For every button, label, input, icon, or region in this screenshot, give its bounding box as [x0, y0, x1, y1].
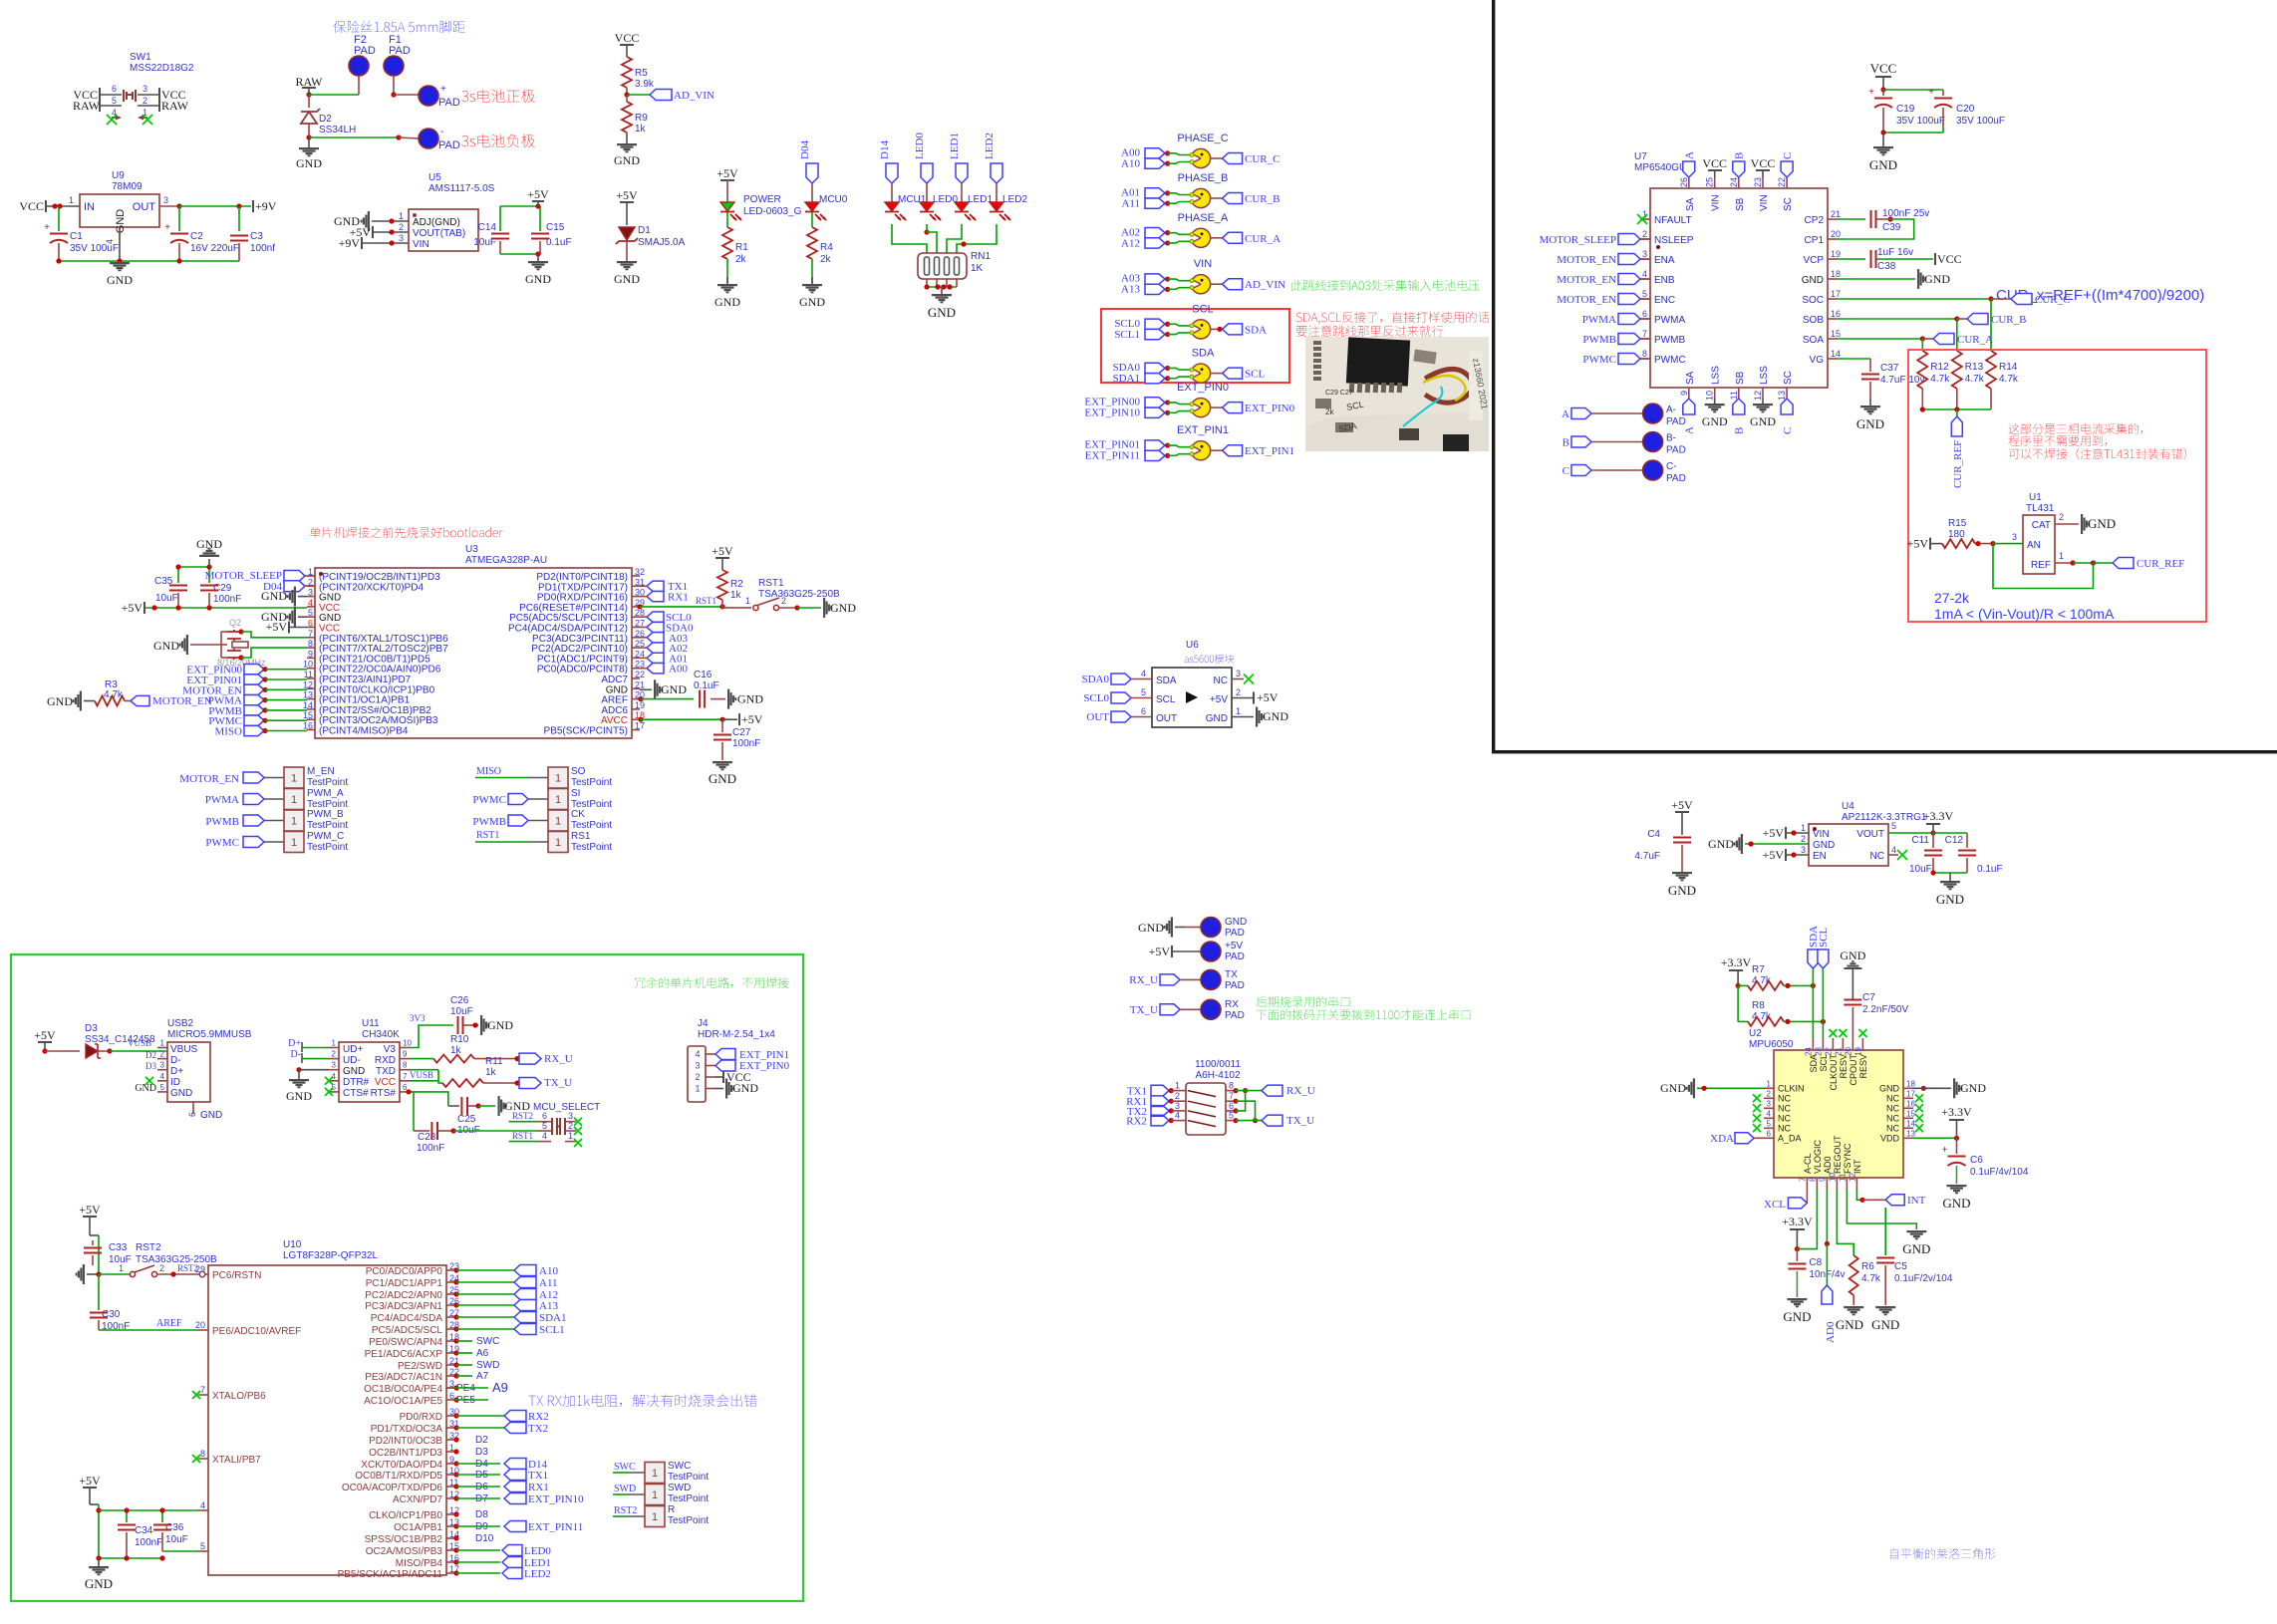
- svg-text:CUR_B: CUR_B: [1245, 193, 1280, 205]
- svg-text:GND: GND: [1813, 840, 1835, 851]
- svg-text:5: 5: [1642, 289, 1647, 299]
- svg-text:U10: U10: [283, 1239, 302, 1250]
- svg-text:PWM_B: PWM_B: [307, 809, 344, 820]
- svg-text:C25: C25: [457, 1114, 476, 1125]
- svg-text:A10: A10: [1121, 158, 1140, 170]
- svg-text:12: 12: [1753, 391, 1763, 401]
- svg-text:SB: SB: [1735, 197, 1746, 211]
- svg-text:EXT_PIN10: EXT_PIN10: [1084, 407, 1140, 419]
- svg-text:SC: SC: [1783, 371, 1794, 385]
- svg-text:2: 2: [695, 1072, 700, 1082]
- svg-text:POWER: POWER: [743, 194, 781, 205]
- svg-text:PWMC: PWMC: [205, 837, 239, 849]
- svg-text:6: 6: [449, 1391, 454, 1401]
- svg-text:1k: 1k: [450, 1045, 462, 1056]
- svg-text:1: 1: [1236, 706, 1241, 716]
- svg-text:GND: GND: [47, 694, 73, 708]
- svg-text:VIN: VIN: [413, 239, 429, 250]
- svg-text:2: 2: [1236, 687, 1241, 697]
- svg-text:PE3/ADC7/AC1N: PE3/ADC7/AC1N: [365, 1372, 442, 1383]
- svg-text:C6: C6: [1970, 1155, 1983, 1166]
- svg-text:3: 3: [1801, 845, 1806, 855]
- svg-text:VCC: VCC: [1937, 252, 1962, 266]
- svg-text:R12: R12: [1930, 362, 1949, 373]
- svg-text:AP2112K-3.3TRG1: AP2112K-3.3TRG1: [1842, 812, 1927, 823]
- svg-text:2.2nF/50V: 2.2nF/50V: [1862, 1004, 1908, 1015]
- svg-text:MPU6050: MPU6050: [1749, 1039, 1794, 1050]
- svg-text:9: 9: [403, 1050, 408, 1059]
- svg-text:10uF: 10uF: [155, 593, 178, 604]
- svg-text:35V 100uF: 35V 100uF: [1956, 116, 2005, 127]
- svg-text:6: 6: [1767, 1129, 1772, 1138]
- svg-text:2: 2: [2059, 512, 2064, 522]
- svg-text:4.7k: 4.7k: [1999, 374, 2019, 385]
- svg-text:C4: C4: [1647, 829, 1660, 840]
- svg-text:PC1/ADC1/APP1: PC1/ADC1/APP1: [366, 1278, 443, 1289]
- svg-text:17: 17: [635, 721, 645, 731]
- svg-text:GND: GND: [115, 209, 127, 234]
- svg-text:ATMEGA328P-AU: ATMEGA328P-AU: [465, 555, 547, 566]
- svg-text:22: 22: [635, 670, 645, 679]
- svg-text:0.1uF: 0.1uF: [546, 237, 572, 248]
- svg-text:RST2: RST2: [177, 1263, 198, 1273]
- svg-text:PHASE_B: PHASE_B: [1178, 172, 1229, 184]
- svg-text:EXT_PIN1: EXT_PIN1: [1245, 445, 1294, 457]
- svg-text:TestPoint: TestPoint: [307, 842, 348, 853]
- svg-text:+5V: +5V: [79, 1474, 101, 1488]
- svg-text:GND: GND: [107, 273, 133, 287]
- svg-text:ACXN/PD7: ACXN/PD7: [393, 1494, 442, 1505]
- svg-text:GND: GND: [487, 1018, 513, 1032]
- svg-text:4: 4: [1141, 669, 1146, 678]
- svg-text:27-2k: 27-2k: [1934, 590, 1970, 606]
- svg-text:MISO: MISO: [214, 726, 242, 738]
- svg-text:8: 8: [200, 1449, 205, 1459]
- svg-text:2k: 2k: [820, 254, 832, 265]
- svg-text:USB2: USB2: [167, 1018, 194, 1029]
- svg-text:17: 17: [1831, 289, 1841, 299]
- svg-text:PWM_A: PWM_A: [307, 788, 344, 799]
- svg-text:PWMA: PWMA: [205, 794, 239, 806]
- svg-text:RST1: RST1: [476, 830, 499, 841]
- svg-text:CP1: CP1: [1805, 235, 1825, 246]
- svg-text:MCU0: MCU0: [819, 194, 848, 205]
- svg-text:1uF 16v: 1uF 16v: [1877, 247, 1913, 258]
- svg-text:19: 19: [635, 700, 645, 710]
- svg-text:PWMB: PWMB: [205, 816, 239, 828]
- svg-text:21: 21: [635, 679, 645, 689]
- svg-text:D-: D-: [170, 1055, 181, 1066]
- svg-text:PAD: PAD: [1666, 473, 1686, 484]
- svg-text:(PCINT4/MISO)PB4: (PCINT4/MISO)PB4: [319, 726, 409, 737]
- svg-text:8: 8: [403, 1061, 408, 1070]
- svg-text:VCC: VCC: [615, 31, 640, 45]
- svg-text:15: 15: [303, 710, 313, 720]
- svg-text:VCC: VCC: [375, 1077, 396, 1088]
- svg-text:GND: GND: [1783, 1309, 1811, 1324]
- svg-text:7: 7: [1642, 329, 1647, 339]
- svg-text:R14: R14: [1999, 362, 2018, 373]
- svg-text:+3.3V: +3.3V: [1941, 1105, 1972, 1119]
- svg-text:TX_U: TX_U: [1286, 1115, 1314, 1127]
- svg-text:CH340K: CH340K: [362, 1029, 400, 1040]
- svg-text:VCC: VCC: [1751, 156, 1776, 170]
- svg-text:5: 5: [200, 1541, 205, 1551]
- svg-text:CUR_REF: CUR_REF: [1952, 440, 1964, 488]
- svg-text:C16: C16: [694, 670, 712, 680]
- svg-text:VIN: VIN: [1711, 194, 1722, 211]
- svg-text:C: C: [1782, 152, 1794, 159]
- svg-text:R1: R1: [735, 242, 748, 253]
- svg-text:PC6/RSTN: PC6/RSTN: [212, 1270, 261, 1281]
- svg-text:D2: D2: [475, 1435, 488, 1446]
- svg-text:SDA: SDA: [1245, 324, 1267, 336]
- svg-text:10uF: 10uF: [165, 1534, 188, 1545]
- svg-text:C37: C37: [1880, 363, 1899, 374]
- svg-text:OUT: OUT: [1156, 713, 1177, 724]
- svg-text:20: 20: [195, 1320, 205, 1330]
- svg-text:4: 4: [1175, 1111, 1180, 1121]
- svg-text:R2: R2: [730, 579, 743, 590]
- svg-text:CTS#: CTS#: [343, 1088, 369, 1099]
- svg-text:PHASE_A: PHASE_A: [1178, 212, 1229, 224]
- svg-text:MICRO5.9MMUSB: MICRO5.9MMUSB: [167, 1029, 252, 1040]
- svg-text:D10: D10: [475, 1533, 494, 1544]
- svg-text:100nF: 100nF: [417, 1143, 444, 1154]
- svg-text:16: 16: [1906, 1099, 1915, 1108]
- svg-text:TestPoint: TestPoint: [307, 820, 348, 831]
- svg-text:GND: GND: [1225, 917, 1247, 928]
- svg-text:RX2: RX2: [528, 1411, 549, 1423]
- svg-text:SCL: SCL: [1156, 694, 1176, 705]
- svg-text:PWMA: PWMA: [1582, 314, 1616, 326]
- svg-text:LED0: LED0: [914, 133, 926, 159]
- svg-text:0.1uF: 0.1uF: [1977, 864, 2003, 875]
- svg-text:MP6540GU: MP6540GU: [1634, 162, 1686, 173]
- svg-text:2: 2: [332, 1050, 337, 1059]
- svg-text:LGT8F328P-QFP32L: LGT8F328P-QFP32L: [283, 1250, 378, 1261]
- svg-text:SWD: SWD: [614, 1484, 636, 1494]
- svg-text:GND: GND: [1138, 921, 1164, 935]
- svg-text:CLKOUT: CLKOUT: [1829, 1054, 1839, 1091]
- svg-text:4: 4: [1891, 845, 1896, 855]
- svg-text:GND: GND: [1750, 414, 1776, 428]
- svg-text:U2: U2: [1749, 1028, 1762, 1039]
- svg-text:CP2: CP2: [1805, 215, 1825, 226]
- svg-text:PWMB: PWMB: [472, 816, 506, 828]
- svg-text:VLOGIC: VLOGIC: [1813, 1139, 1823, 1174]
- svg-text:0.1uF: 0.1uF: [694, 680, 719, 691]
- svg-text:GND: GND: [525, 272, 551, 286]
- svg-text:SCL1: SCL1: [1114, 329, 1140, 341]
- svg-text:AN: AN: [2027, 540, 2041, 551]
- svg-text:7: 7: [200, 1385, 205, 1395]
- svg-text:SCL: SCL: [1192, 303, 1213, 315]
- svg-text:RST1: RST1: [696, 596, 716, 606]
- svg-text:RST2: RST2: [614, 1505, 637, 1516]
- svg-text:+3.3V: +3.3V: [1782, 1215, 1813, 1228]
- svg-text:XDA: XDA: [1710, 1133, 1734, 1145]
- svg-text:8: 8: [1808, 1177, 1817, 1182]
- svg-text:AREF: AREF: [156, 1318, 182, 1329]
- svg-text:+3.3V: +3.3V: [1721, 955, 1752, 969]
- svg-text:CPOUT: CPOUT: [1849, 1053, 1858, 1085]
- svg-text:EXT_PIN11: EXT_PIN11: [528, 1521, 583, 1533]
- svg-text:C11: C11: [1911, 835, 1929, 846]
- svg-text:SDA: SDA: [1192, 348, 1215, 360]
- svg-text:LSS: LSS: [1711, 366, 1722, 385]
- svg-text:10: 10: [1705, 391, 1715, 401]
- svg-text:SA: SA: [1685, 371, 1696, 385]
- svg-text:+: +: [164, 222, 170, 233]
- svg-text:TX2: TX2: [528, 1423, 548, 1435]
- svg-text:SA: SA: [1685, 197, 1696, 211]
- svg-text:+: +: [440, 84, 446, 95]
- svg-text:1: 1: [449, 1443, 454, 1453]
- svg-text:A-: A-: [1666, 405, 1676, 415]
- svg-text:CUR_B: CUR_B: [1991, 314, 2026, 326]
- svg-text:5: 5: [1141, 687, 1146, 697]
- svg-text:2: 2: [568, 1121, 573, 1131]
- svg-text:GND: GND: [170, 1088, 192, 1099]
- svg-text:MOTOR_EN: MOTOR_EN: [152, 695, 212, 707]
- svg-text:PWMC: PWMC: [1582, 354, 1616, 366]
- svg-text:TestPoint: TestPoint: [571, 820, 612, 831]
- svg-text:78M09: 78M09: [112, 181, 142, 192]
- svg-text:PC5/ADC5/SCL: PC5/ADC5/SCL: [372, 1325, 443, 1336]
- svg-text:11: 11: [1729, 391, 1739, 400]
- svg-text:OC1A/PB1: OC1A/PB1: [394, 1522, 442, 1533]
- svg-text:REGOUT: REGOUT: [1833, 1135, 1843, 1174]
- svg-text:XTALI/PB7: XTALI/PB7: [212, 1455, 261, 1466]
- svg-text:GND: GND: [196, 537, 222, 551]
- svg-text:UD+: UD+: [343, 1044, 363, 1055]
- svg-text:PAD: PAD: [1225, 980, 1245, 991]
- svg-text:4: 4: [200, 1500, 205, 1510]
- svg-text:1: 1: [695, 1084, 700, 1094]
- svg-text:RST1: RST1: [758, 578, 784, 589]
- svg-text:13: 13: [303, 690, 313, 700]
- svg-text:OUT: OUT: [1086, 711, 1109, 723]
- svg-text:C5: C5: [1894, 1261, 1907, 1272]
- svg-text:C: C: [1563, 465, 1569, 477]
- svg-text:-: -: [440, 127, 443, 137]
- svg-text:AMS1117-5.0S: AMS1117-5.0S: [428, 183, 495, 194]
- svg-text:1: 1: [291, 837, 297, 849]
- svg-text:3: 3: [399, 233, 404, 243]
- svg-text:+5V: +5V: [122, 601, 143, 615]
- svg-text:CUR_C: CUR_C: [1245, 153, 1280, 165]
- svg-text:GND: GND: [614, 272, 640, 286]
- svg-text:RST1: RST1: [512, 1131, 533, 1141]
- svg-text:GND: GND: [830, 601, 856, 615]
- svg-text:32: 32: [635, 567, 645, 577]
- svg-text:U4: U4: [1842, 801, 1854, 812]
- svg-text:B: B: [1734, 427, 1746, 434]
- svg-text:U7: U7: [1634, 151, 1647, 162]
- svg-text:EXT_PIN0: EXT_PIN0: [1177, 382, 1229, 394]
- svg-text:TL431: TL431: [2026, 503, 2055, 514]
- svg-text:3: 3: [160, 1061, 165, 1070]
- svg-text:NC: NC: [1778, 1103, 1791, 1113]
- svg-text:2: 2: [1801, 834, 1806, 844]
- svg-text:PAD: PAD: [1225, 1010, 1245, 1021]
- svg-text:RX1: RX1: [528, 1482, 549, 1493]
- svg-text:1: 1: [555, 794, 561, 806]
- svg-text:C34: C34: [135, 1525, 153, 1536]
- svg-text:INT: INT: [1907, 1195, 1926, 1207]
- svg-text:C3: C3: [250, 231, 263, 242]
- svg-text:GND: GND: [709, 771, 736, 786]
- svg-text:PWM_C: PWM_C: [307, 831, 344, 842]
- svg-text:NSLEEP: NSLEEP: [1654, 235, 1694, 246]
- svg-text:PD2/INT0/OC3B: PD2/INT0/OC3B: [369, 1436, 442, 1447]
- svg-text:13: 13: [1906, 1129, 1915, 1138]
- svg-text:U1: U1: [2029, 492, 2042, 503]
- svg-text:NC: NC: [1886, 1113, 1899, 1123]
- svg-text:SCL1: SCL1: [539, 1324, 565, 1336]
- svg-text:SS34LH: SS34LH: [319, 125, 356, 135]
- svg-text:14: 14: [1831, 349, 1841, 359]
- svg-text:+: +: [1928, 87, 1934, 98]
- svg-text:GND: GND: [737, 692, 763, 706]
- svg-text:R9: R9: [635, 113, 648, 124]
- svg-text:2: 2: [1175, 1091, 1180, 1101]
- svg-text:PD1/TXD/OC3A: PD1/TXD/OC3A: [371, 1424, 443, 1435]
- svg-text:D-: D-: [290, 1049, 301, 1060]
- svg-text:5: 5: [112, 96, 117, 106]
- svg-text:A6: A6: [476, 1348, 489, 1359]
- svg-text:2k: 2k: [735, 254, 747, 265]
- svg-text:AD_VIN: AD_VIN: [674, 90, 714, 102]
- svg-text:1: 1: [399, 211, 404, 221]
- svg-text:16V 220uF: 16V 220uF: [190, 243, 239, 254]
- svg-text:A13: A13: [1121, 284, 1140, 296]
- svg-text:GND: GND: [200, 1110, 222, 1121]
- svg-text:6: 6: [112, 84, 117, 94]
- svg-text:SPSS/OC1B/PB2: SPSS/OC1B/PB2: [365, 1534, 443, 1545]
- svg-text:AD_VIN: AD_VIN: [1245, 279, 1285, 291]
- svg-text:100nF: 100nF: [213, 594, 241, 605]
- svg-text:+5V: +5V: [34, 1028, 56, 1042]
- svg-text:1: 1: [291, 773, 297, 785]
- svg-text:LED0: LED0: [933, 194, 958, 205]
- svg-text:VCP: VCP: [1803, 255, 1824, 266]
- svg-text:0.1uF/4v/104: 0.1uF/4v/104: [1970, 1167, 2029, 1178]
- svg-text:GND: GND: [1871, 1317, 1899, 1332]
- svg-text:A13: A13: [539, 1300, 558, 1312]
- svg-text:B-: B-: [1666, 433, 1676, 444]
- svg-text:SDA: SDA: [1156, 676, 1177, 686]
- svg-text:26: 26: [1679, 177, 1689, 187]
- svg-text:RST2: RST2: [136, 1242, 161, 1253]
- svg-text:GND: GND: [1879, 1083, 1900, 1093]
- svg-text:A7: A7: [476, 1371, 489, 1382]
- svg-text:ENA: ENA: [1654, 255, 1675, 266]
- svg-text:C14: C14: [478, 222, 497, 233]
- svg-text:3: 3: [163, 195, 168, 205]
- svg-text:PWMA: PWMA: [1654, 315, 1685, 326]
- svg-text:U9: U9: [112, 170, 125, 181]
- svg-text:MOTOR_EN: MOTOR_EN: [179, 773, 239, 785]
- svg-text:GND: GND: [1869, 157, 1897, 172]
- svg-text:15: 15: [1831, 329, 1841, 339]
- svg-text:PE6/ADC10/AVREF: PE6/ADC10/AVREF: [212, 1326, 301, 1337]
- svg-text:C: C: [1782, 427, 1794, 434]
- svg-text:UD-: UD-: [343, 1055, 361, 1066]
- svg-text:TestPoint: TestPoint: [668, 1472, 709, 1483]
- svg-text:TestPoint: TestPoint: [668, 1515, 709, 1526]
- svg-text:SWC: SWC: [668, 1461, 691, 1472]
- svg-text:R10: R10: [450, 1034, 469, 1045]
- svg-text:MOTOR_SLEEP: MOTOR_SLEEP: [1540, 234, 1616, 246]
- svg-text:LED2: LED2: [1002, 194, 1027, 205]
- svg-text:RX_U: RX_U: [1286, 1085, 1315, 1097]
- svg-text:RESV: RESV: [1839, 1054, 1849, 1079]
- svg-text:RX1: RX1: [668, 592, 689, 604]
- svg-text:PAD: PAD: [1666, 445, 1686, 456]
- svg-text:+5V: +5V: [527, 187, 549, 201]
- svg-text:3: 3: [332, 1061, 337, 1070]
- svg-text:16: 16: [303, 721, 313, 731]
- svg-text:EXT_PIN10: EXT_PIN10: [528, 1493, 584, 1505]
- svg-text:+5V: +5V: [79, 1203, 101, 1217]
- svg-text:1: 1: [291, 794, 297, 806]
- svg-text:CUR_A: CUR_A: [1957, 334, 1993, 346]
- svg-text:A: A: [1562, 408, 1569, 420]
- svg-text:PB5(SCK/PCINT5): PB5(SCK/PCINT5): [544, 726, 628, 737]
- svg-text:RTS#: RTS#: [371, 1088, 397, 1099]
- svg-text:RN1: RN1: [971, 251, 991, 262]
- svg-text:MSS22D18G2: MSS22D18G2: [130, 63, 194, 74]
- svg-text:14: 14: [1906, 1119, 1915, 1128]
- svg-text:C12: C12: [1945, 835, 1964, 846]
- svg-text:EXT_PIN11: EXT_PIN11: [1085, 450, 1140, 462]
- svg-text:10uF: 10uF: [1909, 864, 1932, 875]
- svg-text:C19: C19: [1896, 104, 1915, 115]
- svg-text:RESV: RESV: [1858, 1054, 1868, 1079]
- svg-text:GND: GND: [1660, 1081, 1686, 1095]
- svg-text:OC0A/AC0P/TXD/PD6: OC0A/AC0P/TXD/PD6: [342, 1483, 443, 1493]
- svg-text:10: 10: [403, 1039, 412, 1048]
- svg-text:VDD: VDD: [1880, 1133, 1900, 1143]
- svg-text:1: 1: [332, 1039, 337, 1048]
- svg-text:2: 2: [399, 222, 404, 232]
- svg-text:22: 22: [1777, 177, 1787, 187]
- svg-text:0.1uF/2v/104: 0.1uF/2v/104: [1894, 1273, 1953, 1284]
- svg-text:C15: C15: [546, 222, 565, 233]
- svg-text:1: 1: [555, 816, 561, 828]
- svg-text:RX2: RX2: [1126, 1116, 1147, 1128]
- svg-text:1: 1: [555, 773, 561, 785]
- svg-text:SWC: SWC: [614, 1462, 636, 1473]
- svg-text:GND: GND: [732, 1081, 758, 1095]
- svg-text:VOUT: VOUT: [1856, 829, 1884, 840]
- svg-text:+5V: +5V: [716, 166, 738, 180]
- svg-text:10uF: 10uF: [450, 1006, 473, 1017]
- svg-text:6: 6: [1642, 309, 1647, 319]
- svg-text:2: 2: [781, 596, 786, 606]
- svg-text:5: 5: [160, 1083, 165, 1092]
- svg-text:4.7uF 10v: 4.7uF 10v: [1880, 375, 1924, 386]
- svg-text:OC2B/INT1/PD3: OC2B/INT1/PD3: [369, 1448, 442, 1459]
- svg-text:C28: C28: [418, 1132, 436, 1143]
- svg-text:9: 9: [308, 649, 313, 659]
- svg-text:15: 15: [1906, 1109, 1915, 1118]
- svg-text:A9: A9: [492, 1380, 508, 1395]
- svg-text:NC: NC: [1886, 1103, 1899, 1113]
- svg-text:9: 9: [1818, 1177, 1827, 1182]
